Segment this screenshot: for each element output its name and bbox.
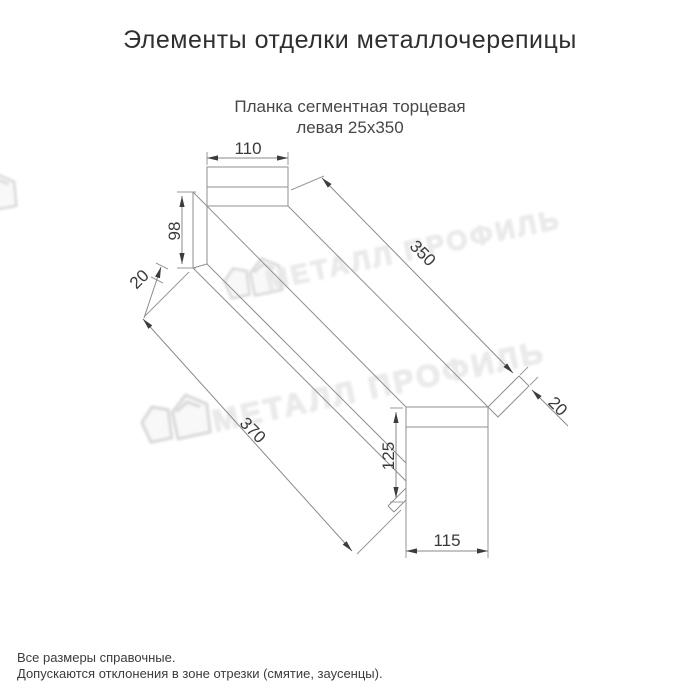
far-end-rect xyxy=(406,407,488,551)
dim-label-left-hem: 20 xyxy=(126,266,153,293)
watermark-logo-icon xyxy=(138,391,212,445)
technical-drawing: МЕТАЛЛ ПРОФИЛЬ МЕТАЛЛ ПРОФИЛЬ xyxy=(0,0,700,700)
watermark-row-1: МЕТАЛЛ ПРОФИЛЬ xyxy=(221,204,564,301)
far-hem-band xyxy=(488,376,529,417)
footer-note-2: Допускаются отклонения в зоне отрезки (с… xyxy=(17,666,383,682)
dim-label-left-end-height: 98 xyxy=(165,222,184,241)
watermark-row-2: МЕТАЛЛ ПРОФИЛЬ xyxy=(138,334,549,446)
dim-label-end-view-width: 115 xyxy=(433,531,460,550)
far-end-hem-kick xyxy=(388,488,406,512)
footer-notes: Все размеры справочные. Допускаются откл… xyxy=(17,650,383,682)
page: Элементы отделки металлочерепицы Планка … xyxy=(0,0,700,700)
footer-note-1: Все размеры справочные. xyxy=(17,650,383,666)
watermark-fragment-left xyxy=(0,171,18,215)
watermark-layer: МЕТАЛЛ ПРОФИЛЬ МЕТАЛЛ ПРОФИЛЬ xyxy=(0,171,564,445)
dim-label-right-hem: 20 xyxy=(544,393,571,420)
dim-label-top-flange-width: 110 xyxy=(234,139,261,158)
dim-label-end-view-height: 125 xyxy=(379,442,398,470)
